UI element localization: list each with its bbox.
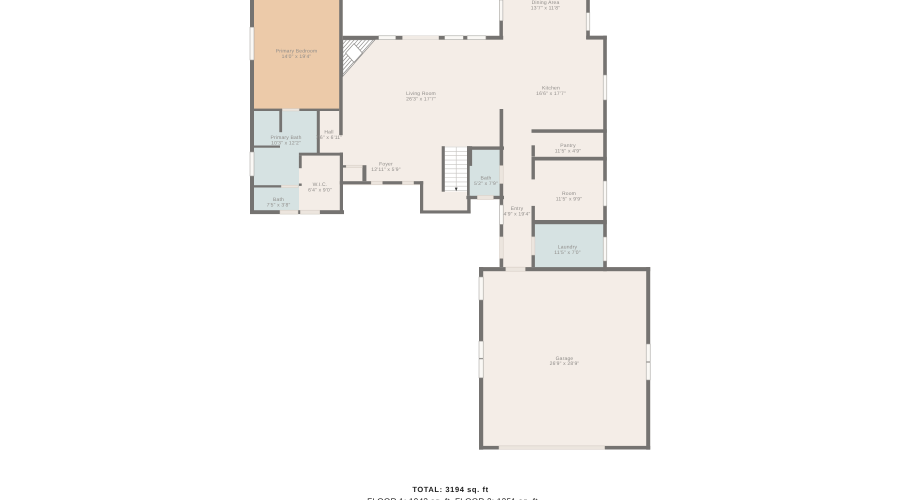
svg-text:4'9" x 19'4": 4'9" x 19'4" <box>504 211 531 217</box>
svg-text:10'3" x 12'2": 10'3" x 12'2" <box>271 140 301 146</box>
svg-text:11'5" x 4'9": 11'5" x 4'9" <box>555 149 581 155</box>
svg-text:12'11" x 5'9": 12'11" x 5'9" <box>371 167 400 173</box>
svg-text:11'5" x 7'0": 11'5" x 7'0" <box>554 250 580 256</box>
svg-text:16'6" x 17'7": 16'6" x 17'7" <box>536 91 566 97</box>
svg-text:6'4" x 9'0": 6'4" x 9'0" <box>308 187 332 193</box>
svg-text:26'3" x 17'7": 26'3" x 17'7" <box>406 96 436 102</box>
svg-text:7'5" x 3'8": 7'5" x 3'8" <box>267 203 291 209</box>
svg-text:TOTAL: 3194 sq. ft: TOTAL: 3194 sq. ft <box>412 485 488 494</box>
svg-text:5'2" x 7'9": 5'2" x 7'9" <box>474 181 498 187</box>
svg-text:7'6" x 6'11": 7'6" x 6'11" <box>316 135 342 141</box>
svg-text:13'7" x 11'8": 13'7" x 11'8" <box>531 5 560 11</box>
svg-text:11'5" x 9'9": 11'5" x 9'9" <box>556 197 582 203</box>
svg-text:14'0" x 19'4": 14'0" x 19'4" <box>282 54 312 60</box>
svg-text:26'9" x 28'9": 26'9" x 28'9" <box>550 361 580 367</box>
